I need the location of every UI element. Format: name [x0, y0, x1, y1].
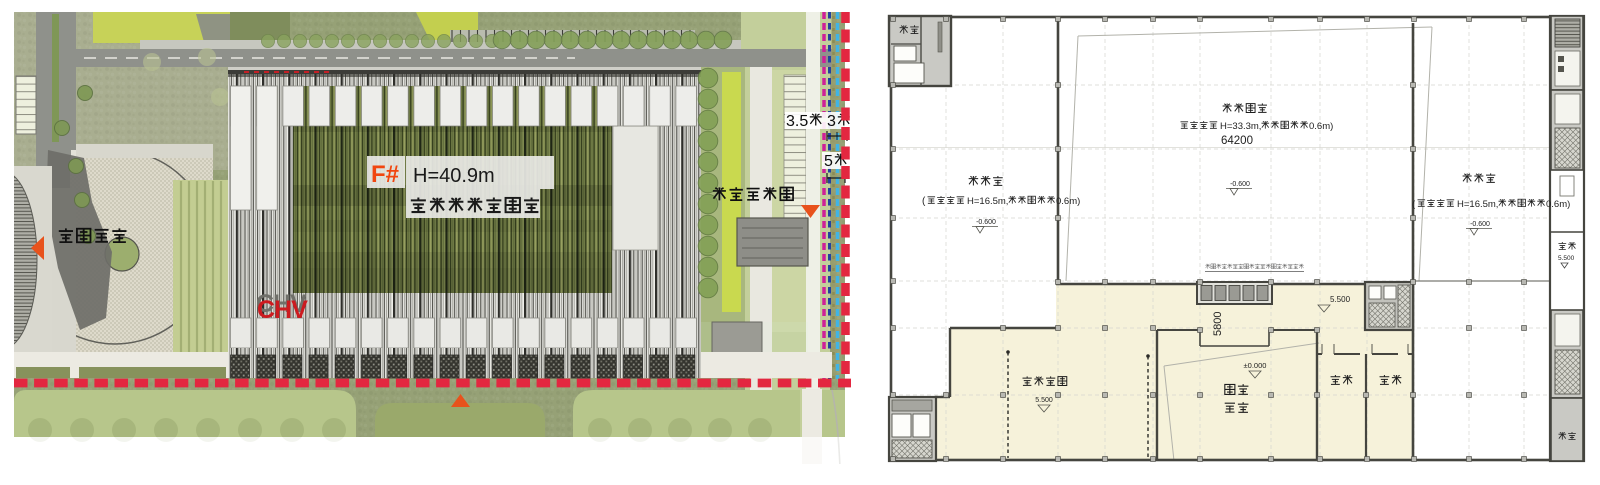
svg-text:H=16.5m,: H=16.5m,: [967, 196, 1008, 207]
svg-text:5800: 5800: [1212, 312, 1224, 336]
svg-text:±0.000: ±0.000: [1244, 361, 1267, 370]
svg-text:0.6m): 0.6m): [1546, 199, 1570, 210]
svg-text:H=16.5m,: H=16.5m,: [1457, 199, 1498, 210]
svg-text:3: 3: [827, 113, 836, 130]
svg-text:H=40.9m: H=40.9m: [413, 165, 495, 187]
svg-text:5: 5: [824, 153, 833, 170]
svg-text:-0.600: -0.600: [1470, 221, 1490, 228]
svg-text:0.6m): 0.6m): [1309, 121, 1333, 132]
svg-text:-0.600: -0.600: [1230, 181, 1250, 188]
svg-text:0.6m): 0.6m): [1056, 196, 1080, 207]
svg-text:5.500: 5.500: [1558, 255, 1575, 262]
svg-text:5.500: 5.500: [1035, 397, 1053, 404]
svg-text:5.500: 5.500: [1330, 295, 1351, 304]
svg-text:3.5: 3.5: [786, 113, 808, 130]
svg-text:F#: F#: [371, 161, 399, 188]
svg-text:H=33.3m,: H=33.3m,: [1220, 121, 1261, 132]
svg-text:64200: 64200: [1221, 135, 1253, 147]
svg-text:CHV: CHV: [257, 296, 308, 324]
svg-text:-0.600: -0.600: [976, 219, 996, 226]
